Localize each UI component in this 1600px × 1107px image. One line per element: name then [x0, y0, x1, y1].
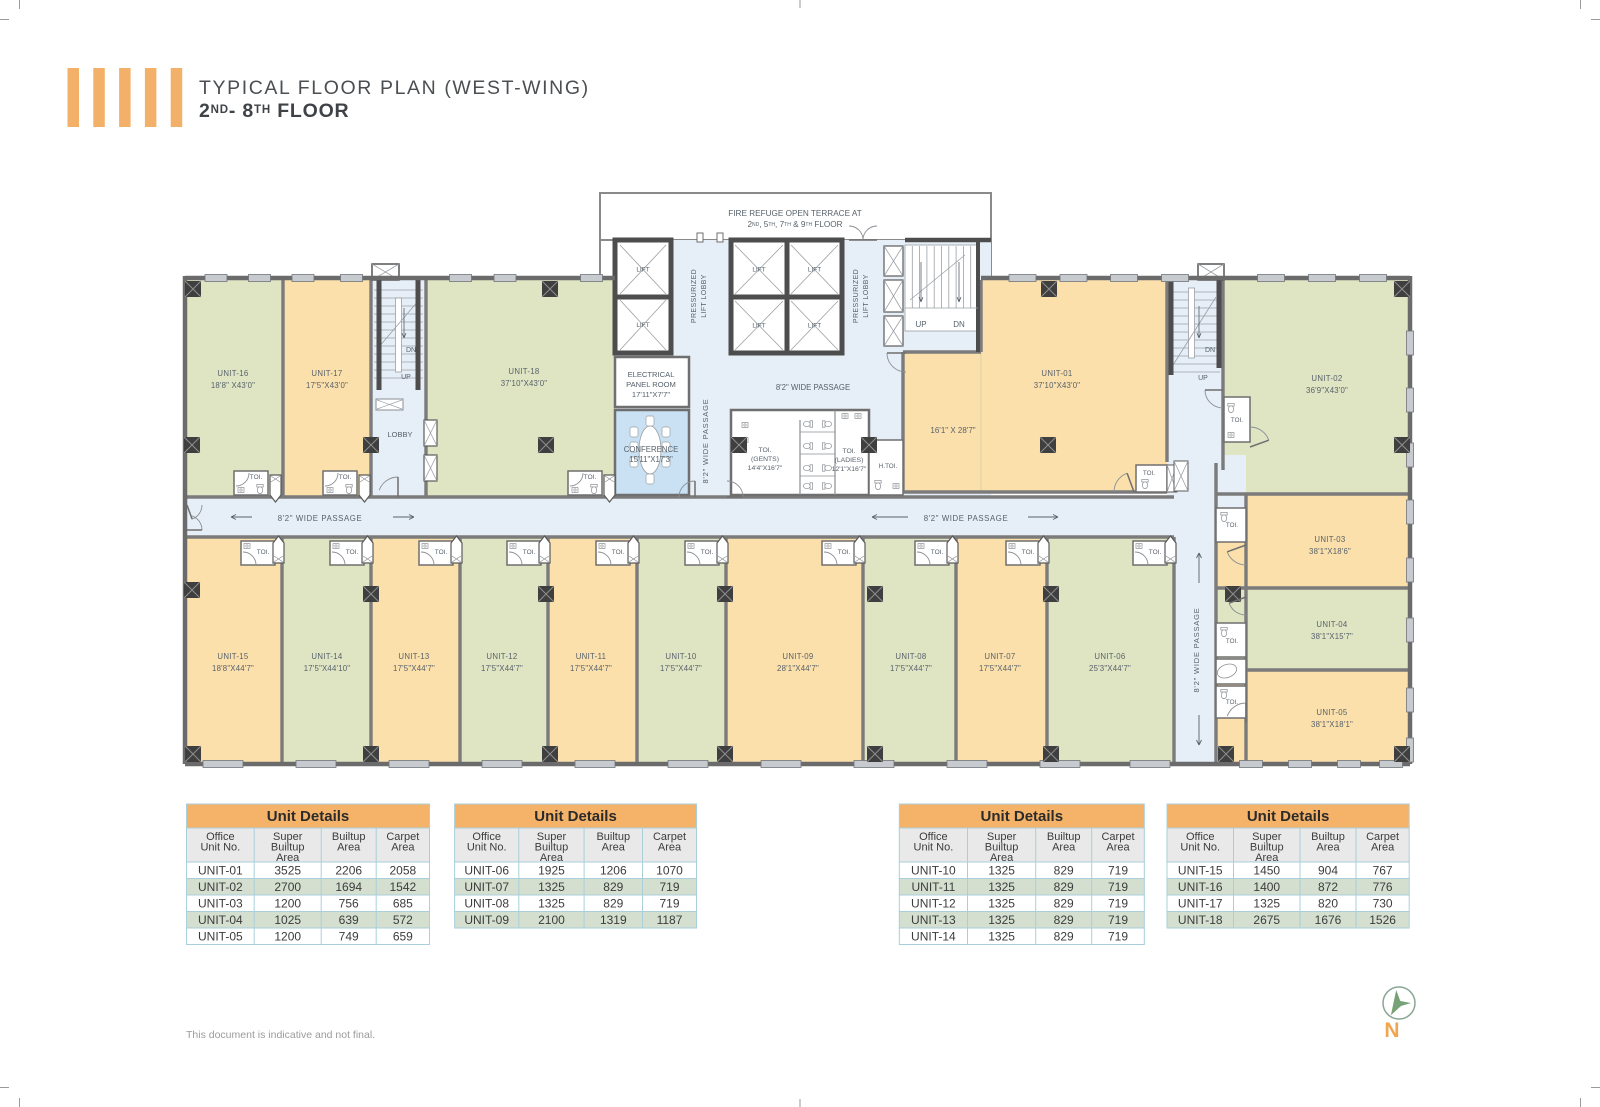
svg-text:1325: 1325	[988, 880, 1015, 894]
svg-text:UNIT-01: UNIT-01	[1041, 369, 1072, 378]
svg-text:UNIT-11: UNIT-11	[912, 880, 956, 894]
svg-text:LIFT LOBBY: LIFT LOBBY	[863, 274, 870, 318]
svg-text:829: 829	[1054, 896, 1074, 910]
svg-text:8'2" WIDE PASSAGE: 8'2" WIDE PASSAGE	[278, 514, 363, 523]
svg-text:UNIT-04: UNIT-04	[1316, 620, 1347, 629]
svg-text:749: 749	[339, 929, 359, 943]
svg-text:PANEL ROOM: PANEL ROOM	[626, 380, 676, 389]
svg-text:1325: 1325	[988, 913, 1015, 927]
svg-text:TOI.: TOI.	[758, 447, 771, 454]
svg-text:UNIT-16: UNIT-16	[1178, 880, 1223, 894]
svg-text:1200: 1200	[274, 929, 301, 943]
svg-text:1925: 1925	[538, 863, 565, 877]
svg-text:1187: 1187	[657, 913, 683, 927]
svg-text:UNIT-07: UNIT-07	[464, 880, 509, 894]
svg-text:719: 719	[1108, 929, 1128, 943]
svg-text:UNIT-13: UNIT-13	[911, 913, 956, 927]
svg-text:UNIT-11: UNIT-11	[576, 652, 607, 661]
svg-text:TOI.: TOI.	[931, 549, 944, 556]
svg-text:829: 829	[1054, 929, 1074, 943]
svg-text:Unit No.: Unit No.	[914, 842, 954, 854]
svg-text:904: 904	[1318, 863, 1338, 877]
svg-text:UNIT-05: UNIT-05	[198, 929, 243, 943]
svg-text:H.TOI.: H.TOI.	[879, 463, 898, 470]
svg-text:1400: 1400	[1253, 880, 1280, 894]
svg-text:UNIT-12: UNIT-12	[486, 652, 517, 661]
svg-text:UNIT-08: UNIT-08	[895, 652, 926, 661]
svg-text:18'8" X43'0": 18'8" X43'0"	[211, 381, 255, 390]
svg-text:2100: 2100	[538, 913, 565, 927]
svg-text:LIFT: LIFT	[752, 323, 765, 330]
svg-text:1325: 1325	[988, 896, 1015, 910]
svg-text:1025: 1025	[274, 913, 301, 927]
svg-text:UP: UP	[401, 374, 411, 381]
svg-text:2206: 2206	[335, 863, 362, 877]
svg-text:659: 659	[393, 929, 413, 943]
svg-text:UNIT-17: UNIT-17	[311, 369, 342, 378]
svg-text:12'1"X16'7": 12'1"X16'7"	[832, 466, 867, 473]
svg-text:This document is indicative an: This document is indicative and not fina…	[186, 1029, 375, 1041]
svg-text:1542: 1542	[389, 880, 416, 894]
svg-text:719: 719	[659, 880, 679, 894]
svg-text:LOBBY: LOBBY	[387, 430, 412, 439]
svg-text:LIFT: LIFT	[808, 323, 821, 330]
svg-text:LIFT LOBBY: LIFT LOBBY	[701, 274, 708, 318]
svg-text:16'1" X 28'7": 16'1" X 28'7"	[930, 426, 975, 435]
svg-text:LIFT: LIFT	[808, 267, 821, 274]
svg-text:776: 776	[1373, 880, 1393, 894]
svg-text:TOI.: TOI.	[1149, 549, 1162, 556]
svg-text:TOI.: TOI.	[523, 549, 536, 556]
svg-text:1200: 1200	[274, 896, 301, 910]
svg-text:17'5"X43'0": 17'5"X43'0"	[306, 381, 348, 390]
svg-text:UNIT-07: UNIT-07	[984, 652, 1015, 661]
svg-text:UNIT-18: UNIT-18	[1178, 913, 1223, 927]
svg-text:TOI.: TOI.	[339, 474, 352, 481]
svg-text:38'1"X15'7": 38'1"X15'7"	[1311, 632, 1353, 641]
svg-text:36'9"X43'0": 36'9"X43'0"	[1306, 386, 1348, 395]
svg-text:1325: 1325	[538, 896, 565, 910]
svg-text:685: 685	[393, 896, 413, 910]
svg-text:(LADIES): (LADIES)	[835, 457, 864, 464]
svg-text:UNIT-09: UNIT-09	[782, 652, 813, 661]
svg-text:UNIT-04: UNIT-04	[198, 913, 243, 927]
svg-text:756: 756	[339, 896, 359, 910]
svg-text:829: 829	[1054, 863, 1074, 877]
svg-text:8'2" WIDE PASSAGE: 8'2" WIDE PASSAGE	[924, 514, 1009, 523]
svg-text:Area: Area	[391, 842, 415, 854]
svg-text:CONFERENCE: CONFERENCE	[624, 445, 679, 454]
svg-text:37'10"X43'0": 37'10"X43'0"	[1034, 381, 1080, 390]
svg-text:719: 719	[1108, 913, 1128, 927]
svg-text:2058: 2058	[389, 863, 416, 877]
svg-text:37'10"X43'0": 37'10"X43'0"	[501, 379, 547, 388]
svg-text:UNIT-16: UNIT-16	[217, 369, 248, 378]
svg-text:LIFT: LIFT	[752, 267, 765, 274]
svg-text:829: 829	[1054, 913, 1074, 927]
svg-text:UNIT-03: UNIT-03	[198, 896, 243, 910]
svg-text:UNIT-15: UNIT-15	[217, 652, 248, 661]
svg-text:UNIT-06: UNIT-06	[464, 863, 509, 877]
svg-text:TOI.: TOI.	[584, 474, 597, 481]
svg-text:17'11"X7'7": 17'11"X7'7"	[632, 390, 670, 399]
svg-text:FIRE REFUGE OPEN TERRACE AT: FIRE REFUGE OPEN TERRACE AT	[728, 209, 861, 218]
svg-text:18'8"X44'7": 18'8"X44'7"	[212, 664, 254, 673]
svg-text:Area: Area	[658, 842, 682, 854]
svg-text:1325: 1325	[538, 880, 565, 894]
svg-text:Unit Details: Unit Details	[534, 808, 617, 825]
svg-text:TOI.: TOI.	[842, 448, 855, 455]
svg-text:UNIT-08: UNIT-08	[464, 896, 509, 910]
svg-text:3525: 3525	[274, 863, 301, 877]
svg-text:572: 572	[393, 913, 413, 927]
svg-text:639: 639	[339, 913, 359, 927]
svg-text:8'2" WIDE PASSAGE: 8'2" WIDE PASSAGE	[701, 398, 710, 483]
svg-text:TOI.: TOI.	[1022, 549, 1035, 556]
svg-text:1206: 1206	[600, 863, 627, 877]
svg-text:1070: 1070	[656, 863, 683, 877]
svg-text:LIFT: LIFT	[636, 267, 649, 274]
svg-text:UNIT-14: UNIT-14	[311, 652, 342, 661]
svg-text:38'1"X18'6": 38'1"X18'6"	[1309, 547, 1351, 556]
svg-text:PRESSURIZED: PRESSURIZED	[853, 269, 860, 323]
svg-text:TOI.: TOI.	[838, 549, 851, 556]
svg-text:829: 829	[1054, 880, 1074, 894]
svg-text:Unit Details: Unit Details	[1247, 808, 1330, 825]
svg-text:DN: DN	[1205, 347, 1215, 354]
svg-text:UNIT-15: UNIT-15	[1178, 863, 1223, 877]
svg-text:Area: Area	[1371, 842, 1395, 854]
svg-text:Unit No.: Unit No.	[1180, 842, 1220, 854]
svg-text:17'5"X44'7": 17'5"X44'7"	[481, 664, 523, 673]
svg-text:820: 820	[1318, 896, 1338, 910]
svg-text:719: 719	[1108, 863, 1128, 877]
svg-text:719: 719	[1108, 896, 1128, 910]
svg-text:Unit Details: Unit Details	[267, 808, 350, 825]
svg-text:38'1"X18'1": 38'1"X18'1"	[1311, 720, 1353, 729]
svg-text:UNIT-10: UNIT-10	[911, 863, 956, 877]
svg-text:872: 872	[1318, 880, 1338, 894]
svg-text:829: 829	[603, 896, 623, 910]
svg-text:UNIT-18: UNIT-18	[508, 367, 539, 376]
svg-text:Area: Area	[1052, 842, 1076, 854]
svg-text:1325: 1325	[988, 929, 1015, 943]
svg-text:28'1"X44'7": 28'1"X44'7"	[777, 664, 819, 673]
svg-text:Area: Area	[1106, 842, 1130, 854]
svg-text:1676: 1676	[1315, 913, 1342, 927]
svg-text:1694: 1694	[335, 880, 362, 894]
svg-text:719: 719	[659, 896, 679, 910]
svg-text:UNIT-02: UNIT-02	[198, 880, 243, 894]
svg-text:Area: Area	[1316, 842, 1340, 854]
svg-text:1325: 1325	[1253, 896, 1280, 910]
svg-text:PRESSURIZED: PRESSURIZED	[691, 269, 698, 323]
svg-text:1526: 1526	[1369, 913, 1396, 927]
svg-text:UNIT-01: UNIT-01	[198, 863, 243, 877]
svg-text:UNIT-13: UNIT-13	[398, 652, 429, 661]
svg-text:8'2" WIDE PASSAGE: 8'2" WIDE PASSAGE	[1192, 607, 1201, 692]
svg-text:ELECTRICAL: ELECTRICAL	[628, 370, 675, 379]
svg-text:17'5"X44'7": 17'5"X44'7"	[979, 664, 1021, 673]
svg-text:767: 767	[1373, 863, 1393, 877]
svg-text:2ND- 8TH FLOOR: 2ND- 8TH FLOOR	[199, 100, 349, 122]
svg-text:TOI.: TOI.	[1143, 470, 1155, 477]
svg-text:TOI.: TOI.	[257, 549, 270, 556]
svg-text:17'5"X44'10": 17'5"X44'10"	[304, 664, 350, 673]
svg-text:15'11"X17'3": 15'11"X17'3"	[629, 455, 673, 464]
svg-text:TOI.: TOI.	[346, 549, 359, 556]
svg-text:8'2" WIDE PASSAGE: 8'2" WIDE PASSAGE	[776, 383, 850, 392]
svg-text:Area: Area	[602, 842, 626, 854]
svg-text:UP: UP	[1198, 375, 1208, 382]
svg-text:TOI.: TOI.	[1226, 522, 1238, 529]
svg-text:17'5"X44'7": 17'5"X44'7"	[570, 664, 612, 673]
svg-text:829: 829	[603, 880, 623, 894]
svg-text:25'3"X44'7": 25'3"X44'7"	[1089, 664, 1131, 673]
svg-text:14'4"X16'7": 14'4"X16'7"	[748, 465, 783, 472]
svg-text:N: N	[1384, 1019, 1399, 1042]
svg-text:TOI.: TOI.	[701, 549, 714, 556]
svg-text:UNIT-02: UNIT-02	[1311, 374, 1342, 383]
svg-text:2675: 2675	[1253, 913, 1280, 927]
svg-text:UNIT-05: UNIT-05	[1316, 708, 1347, 717]
svg-text:Unit Details: Unit Details	[981, 808, 1064, 825]
svg-text:Unit No.: Unit No.	[467, 842, 507, 854]
svg-text:TYPICAL FLOOR PLAN (WEST-WING): TYPICAL FLOOR PLAN (WEST-WING)	[199, 77, 590, 99]
svg-text:Unit No.: Unit No.	[200, 842, 240, 854]
svg-text:(GENTS): (GENTS)	[751, 456, 779, 463]
svg-text:730: 730	[1373, 896, 1393, 910]
svg-text:17'5"X44'7": 17'5"X44'7"	[890, 664, 932, 673]
svg-text:1319: 1319	[600, 913, 627, 927]
svg-text:UNIT-14: UNIT-14	[911, 929, 956, 943]
svg-text:2ND, 5TH, 7TH & 9TH FLOOR: 2ND, 5TH, 7TH & 9TH FLOOR	[747, 220, 842, 229]
svg-text:UNIT-12: UNIT-12	[911, 896, 956, 910]
svg-text:DN: DN	[406, 347, 416, 354]
svg-text:UNIT-06: UNIT-06	[1094, 652, 1125, 661]
svg-text:719: 719	[1108, 880, 1128, 894]
svg-text:TOI.: TOI.	[1231, 417, 1243, 424]
svg-text:UP: UP	[915, 320, 926, 329]
svg-text:TOI.: TOI.	[435, 549, 448, 556]
svg-text:DN: DN	[953, 320, 965, 329]
svg-text:TOI.: TOI.	[1226, 638, 1238, 645]
svg-text:UNIT-09: UNIT-09	[464, 913, 509, 927]
svg-text:TOI.: TOI.	[612, 549, 625, 556]
svg-text:2700: 2700	[274, 880, 301, 894]
svg-text:Area: Area	[337, 842, 361, 854]
svg-text:TOI.: TOI.	[250, 474, 263, 481]
svg-text:17'5"X44'7": 17'5"X44'7"	[393, 664, 435, 673]
svg-text:UNIT-17: UNIT-17	[1178, 896, 1223, 910]
svg-text:UNIT-03: UNIT-03	[1314, 535, 1345, 544]
svg-text:UNIT-10: UNIT-10	[665, 652, 696, 661]
svg-text:1325: 1325	[988, 863, 1015, 877]
svg-text:LIFT: LIFT	[636, 322, 649, 329]
svg-text:1450: 1450	[1253, 863, 1280, 877]
svg-text:17'5"X44'7": 17'5"X44'7"	[660, 664, 702, 673]
